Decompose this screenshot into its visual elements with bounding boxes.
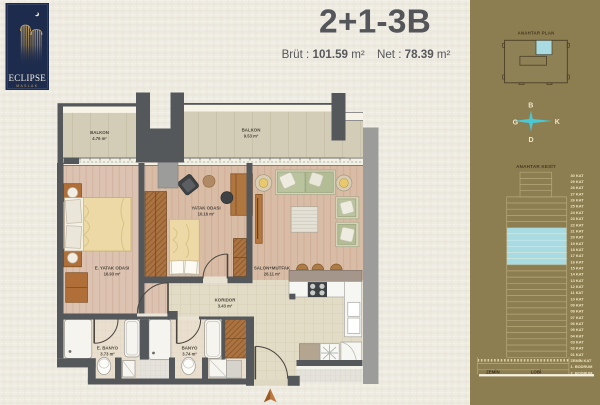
svg-text:24 KAT: 24 KAT	[571, 210, 585, 215]
svg-text:9.53 m²: 9.53 m²	[244, 133, 259, 138]
svg-text:28 KAT: 28 KAT	[571, 185, 585, 190]
svg-text:3.43 m²: 3.43 m²	[218, 303, 233, 308]
svg-text:01 KAT: 01 KAT	[571, 352, 585, 357]
svg-text:ANAHTAR KESİT: ANAHTAR KESİT	[516, 163, 556, 169]
svg-text:BALKON: BALKON	[242, 128, 261, 133]
svg-text:BALKON: BALKON	[90, 130, 109, 135]
svg-text:07 KAT: 07 KAT	[571, 315, 585, 320]
svg-text:1. BODRUM: 1. BODRUM	[571, 364, 593, 369]
svg-text:13 KAT: 13 KAT	[571, 278, 585, 283]
svg-text:YATAK ODASI: YATAK ODASI	[191, 206, 220, 211]
svg-text:09 KAT: 09 KAT	[571, 303, 585, 308]
svg-text:16.93 m²: 16.93 m²	[104, 271, 121, 276]
svg-text:03 KAT: 03 KAT	[571, 340, 585, 345]
svg-text:22 KAT: 22 KAT	[571, 222, 585, 227]
svg-text:18 KAT: 18 KAT	[571, 247, 585, 252]
svg-text:29 KAT: 29 KAT	[571, 179, 585, 184]
svg-text:21 KAT: 21 KAT	[571, 228, 585, 233]
svg-text:SALON+MUTFAK: SALON+MUTFAK	[254, 266, 291, 271]
svg-text:06 KAT: 06 KAT	[571, 321, 585, 326]
svg-text:12 KAT: 12 KAT	[571, 284, 585, 289]
svg-text:04 KAT: 04 KAT	[571, 333, 585, 338]
svg-text:17 KAT: 17 KAT	[571, 253, 585, 258]
svg-text:ECLIPSE: ECLIPSE	[8, 73, 46, 83]
svg-text:K: K	[555, 119, 560, 126]
svg-text:3.73 m²: 3.73 m²	[100, 351, 115, 356]
svg-text:08 KAT: 08 KAT	[571, 309, 585, 314]
svg-text:16 KAT: 16 KAT	[571, 259, 585, 264]
svg-text:B: B	[528, 103, 533, 110]
svg-text:26.11 m²: 26.11 m²	[264, 271, 281, 276]
svg-text:02 KAT: 02 KAT	[571, 346, 585, 351]
svg-text:23 KAT: 23 KAT	[571, 216, 585, 221]
svg-text:26 KAT: 26 KAT	[571, 198, 585, 203]
svg-text:ZEMİN: ZEMİN	[486, 369, 500, 374]
svg-text:30 KAT: 30 KAT	[571, 173, 585, 178]
svg-text:05 KAT: 05 KAT	[571, 327, 585, 332]
svg-text:KORIDOR: KORIDOR	[215, 298, 237, 303]
svg-text:2+1-3B: 2+1-3B	[319, 4, 431, 41]
svg-text:10 KAT: 10 KAT	[571, 296, 585, 301]
svg-text:25 KAT: 25 KAT	[571, 204, 585, 209]
svg-text:3.74 m²: 3.74 m²	[182, 351, 197, 356]
svg-text:MASLAK: MASLAK	[16, 84, 38, 88]
svg-text:D: D	[528, 137, 533, 144]
svg-text:ANAHTAR PLAN: ANAHTAR PLAN	[518, 31, 555, 36]
svg-text:19 KAT: 19 KAT	[571, 241, 585, 246]
svg-text:E. BANYO: E. BANYO	[97, 346, 119, 351]
svg-text:15 KAT: 15 KAT	[571, 265, 585, 270]
svg-text:11 KAT: 11 KAT	[571, 290, 585, 295]
svg-text:4.76 m²: 4.76 m²	[92, 136, 107, 141]
svg-text:BANYO: BANYO	[182, 346, 198, 351]
svg-text:ZEMİN KAT: ZEMİN KAT	[571, 358, 593, 363]
svg-text:E. YATAK ODASI: E. YATAK ODASI	[95, 266, 129, 271]
svg-text:G: G	[513, 119, 519, 126]
svg-text:27 KAT: 27 KAT	[571, 191, 585, 196]
svg-text:10.16 m²: 10.16 m²	[198, 211, 215, 216]
svg-text:LOBİ: LOBİ	[531, 369, 542, 374]
svg-text:20 KAT: 20 KAT	[571, 235, 585, 240]
svg-text:14 KAT: 14 KAT	[571, 272, 585, 277]
